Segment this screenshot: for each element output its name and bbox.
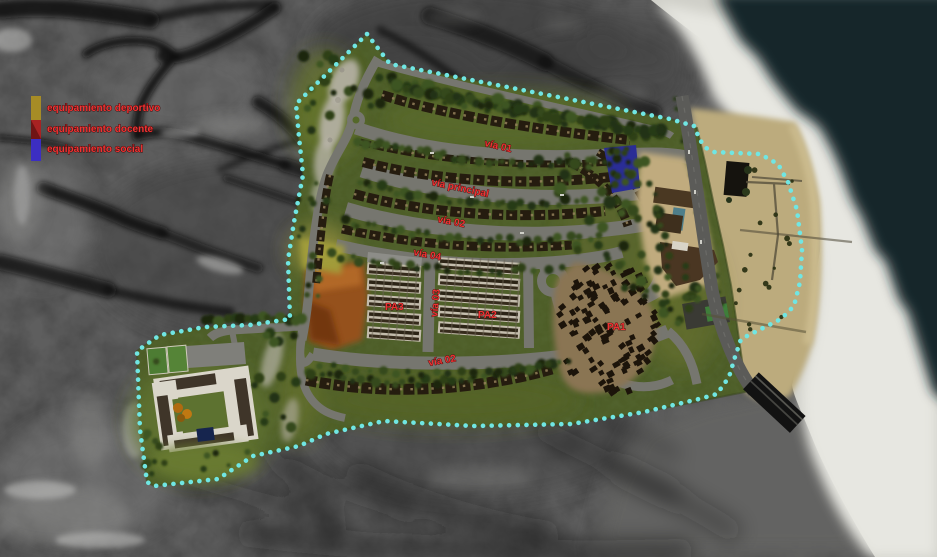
svg-text:PA2: PA2 (478, 310, 497, 321)
svg-text:equipamiento docente: equipamiento docente (47, 124, 154, 135)
svg-text:equipamiento social: equipamiento social (47, 144, 143, 155)
svg-text:PA1: PA1 (607, 322, 626, 333)
svg-text:equipamiento deportivo: equipamiento deportivo (47, 103, 160, 114)
svg-text:PA3: PA3 (385, 302, 404, 313)
